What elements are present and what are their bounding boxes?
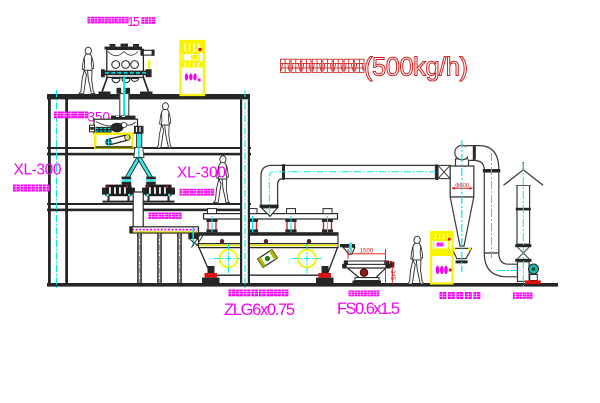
svg-text:345: 345 <box>389 270 395 281</box>
svg-text:ZLG6x0.75: ZLG6x0.75 <box>224 301 295 319</box>
svg-text:1.5: 1.5 <box>128 15 141 29</box>
svg-text:1500: 1500 <box>360 249 374 255</box>
svg-text:XL-300: XL-300 <box>14 162 62 179</box>
svg-text:FS0.6x1.5: FS0.6x1.5 <box>337 300 400 318</box>
svg-text:(500kg/h): (500kg/h) <box>364 54 468 82</box>
svg-text:XL-300: XL-300 <box>177 165 226 182</box>
